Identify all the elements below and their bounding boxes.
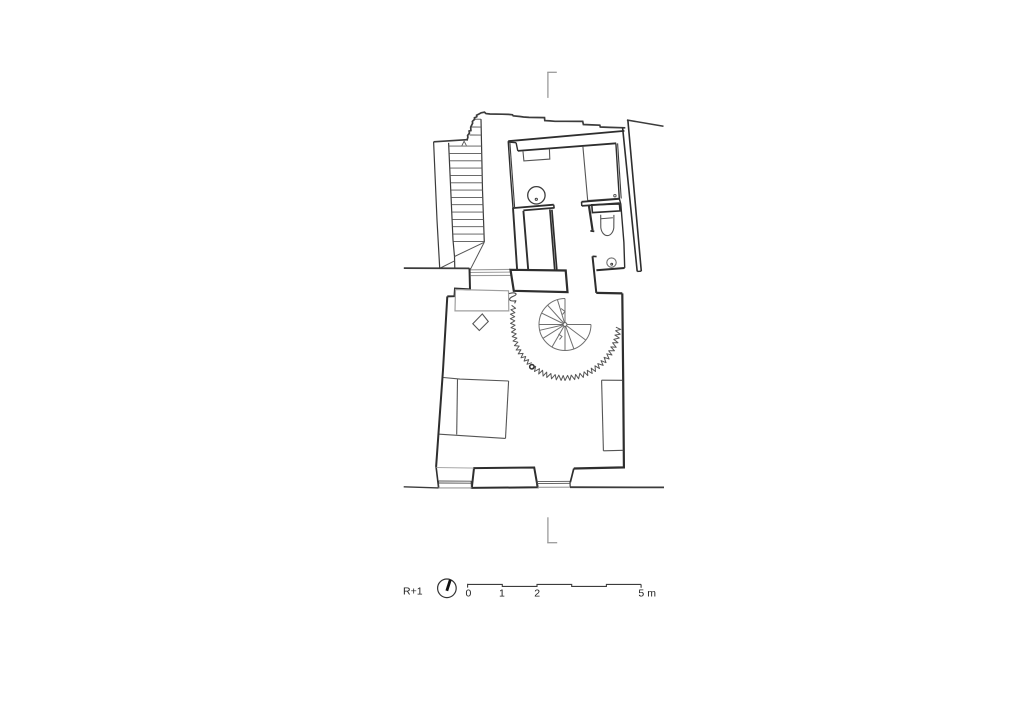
svg-text:1: 1 <box>499 587 505 599</box>
svg-text:m: m <box>647 587 656 599</box>
svg-text:0: 0 <box>465 587 471 599</box>
svg-text:2: 2 <box>534 587 540 599</box>
svg-text:5: 5 <box>638 587 644 599</box>
svg-text:R+1: R+1 <box>403 586 423 598</box>
